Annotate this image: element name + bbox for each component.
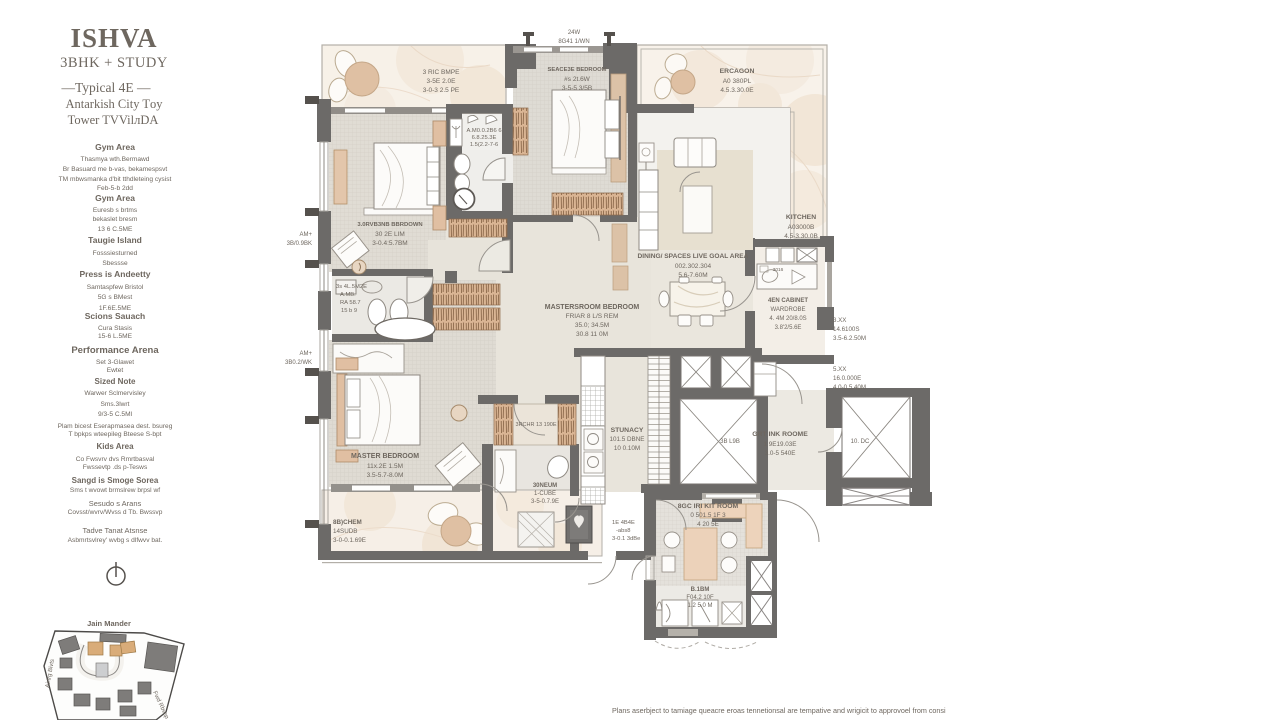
svg-text:3.0RVB3NB BBRDOWN: 3.0RVB3NB BBRDOWN bbox=[357, 222, 422, 228]
svg-text:B.1BM: B.1BM bbox=[691, 587, 710, 593]
svg-text:4.5-3.30.0B: 4.5-3.30.0B bbox=[784, 233, 818, 240]
svg-text:Sesudo s Arans: Sesudo s Arans bbox=[89, 499, 142, 508]
svg-text:Fosssiesturned: Fosssiesturned bbox=[93, 250, 138, 257]
svg-text:F04.2 10F: F04.2 10F bbox=[686, 595, 714, 601]
svg-text:ERCAGON: ERCAGON bbox=[720, 68, 755, 75]
svg-text:RA 58.7: RA 58.7 bbox=[340, 300, 361, 306]
svg-text:4EN CABINET: 4EN CABINET bbox=[768, 298, 808, 304]
svg-text:Tower TVVilлDA: Tower TVVilлDA bbox=[68, 113, 159, 127]
svg-text:4.0-0.5.40M: 4.0-0.5.40M bbox=[833, 384, 866, 391]
svg-text:A03000B: A03000B bbox=[788, 224, 815, 231]
svg-text:16.0.000E: 16.0.000E bbox=[833, 375, 861, 382]
svg-text:3.XX: 3.XX bbox=[833, 317, 846, 324]
svg-text:Sized Note: Sized Note bbox=[95, 377, 136, 386]
svg-text:13 6 C.5ME: 13 6 C.5ME bbox=[98, 226, 133, 233]
svg-text:6.8.25.3E: 6.8.25.3E bbox=[472, 135, 497, 141]
svg-text:3-5-0.7.9E: 3-5-0.7.9E bbox=[531, 499, 559, 505]
svg-text:Set 3-Glawet: Set 3-Glawet bbox=[96, 359, 134, 366]
svg-text:DINING/ SPACES LIVE GOAL AREA: DINING/ SPACES LIVE GOAL AREA bbox=[638, 253, 749, 260]
svg-text:3B0.2/WK: 3B0.2/WK bbox=[285, 360, 312, 366]
svg-text:A.MB.: A.MB. bbox=[340, 292, 356, 298]
svg-text:FRIAR 8 L/S REM: FRIAR 8 L/S REM bbox=[566, 313, 619, 320]
svg-text:A.M0.0.2B6 6: A.M0.0.2B6 6 bbox=[466, 128, 501, 134]
svg-text:3-0.4:5.7BM: 3-0.4:5.7BM bbox=[372, 240, 407, 247]
svg-text:Br Basuard me b-vas, bekamesps: Br Basuard me b-vas, bekamespsvt bbox=[63, 166, 168, 173]
svg-text:3 RIC BMPE: 3 RIC BMPE bbox=[423, 69, 461, 76]
svg-text:3s 4L.5M2E: 3s 4L.5M2E bbox=[336, 284, 367, 290]
svg-text:-abs8: -abs8 bbox=[616, 528, 631, 534]
svg-text:AM+: AM+ bbox=[299, 351, 312, 357]
svg-text:3.5-5.7-8.0M: 3.5-5.7-8.0M bbox=[367, 472, 404, 479]
svg-text:15-6 L.5ME: 15-6 L.5ME bbox=[98, 333, 133, 340]
svg-text:Gym Area: Gym Area bbox=[95, 142, 135, 152]
svg-text:8B)CHEM: 8B)CHEM bbox=[333, 519, 362, 526]
svg-text:14.6100S: 14.6100S bbox=[833, 326, 860, 333]
svg-text:Taugie Island: Taugie Island bbox=[88, 235, 142, 245]
svg-text:Sangd is Smoge Sorea: Sangd is Smoge Sorea bbox=[72, 476, 159, 485]
svg-text:Plam bicest Eserapmasea dest.: Plam bicest Eserapmasea dest. bsureg bbox=[58, 423, 173, 430]
svg-text:5.XX: 5.XX bbox=[833, 366, 846, 373]
svg-text:3.0-5 540E: 3.0-5 540E bbox=[765, 450, 796, 457]
svg-text:Performance Arena: Performance Arena bbox=[71, 345, 159, 356]
svg-text:3BHK + STUDY: 3BHK + STUDY bbox=[60, 55, 168, 71]
svg-text:1.2 5.0 M: 1.2 5.0 M bbox=[687, 603, 712, 609]
svg-text:ISHVA: ISHVA bbox=[70, 23, 157, 53]
svg-text:Fwssevtp .ds p-Tesws: Fwssevtp .ds p-Tesws bbox=[83, 464, 148, 471]
svg-text:A0 380PL: A0 380PL bbox=[723, 78, 752, 85]
svg-text:24W: 24W bbox=[568, 30, 581, 36]
svg-text:Jain Mander: Jain Mander bbox=[87, 619, 131, 628]
svg-text:5.6-7.60M: 5.6-7.60M bbox=[678, 272, 707, 279]
svg-text:bekaslet bresm: bekaslet bresm bbox=[93, 216, 138, 223]
svg-text:1-CUBE: 1-CUBE bbox=[534, 491, 556, 497]
svg-text:10 0.10M: 10 0.10M bbox=[614, 445, 640, 452]
svg-text:3-0.1 3dBe: 3-0.1 3dBe bbox=[612, 536, 640, 542]
svg-text:1E 4B4E: 1E 4B4E bbox=[612, 520, 635, 526]
svg-text:1F.6E.5ME: 1F.6E.5ME bbox=[99, 305, 132, 312]
svg-text:3.5-6.2.50M: 3.5-6.2.50M bbox=[833, 335, 866, 342]
svg-text:Cura Stasis: Cura Stasis bbox=[98, 325, 133, 332]
svg-text:Sms.3lwrt: Sms.3lwrt bbox=[101, 401, 130, 408]
svg-text:101.5 DBNE: 101.5 DBNE bbox=[609, 436, 644, 443]
svg-text:5G s BMest: 5G s BMest bbox=[98, 294, 133, 301]
svg-text:Ewtet: Ewtet bbox=[107, 367, 124, 374]
svg-text:AM+: AM+ bbox=[299, 232, 312, 238]
svg-text:4.5.3.30.0E: 4.5.3.30.0E bbox=[720, 87, 754, 94]
svg-text:Gym Area: Gym Area bbox=[95, 193, 135, 203]
svg-text:MASTER BEDROOM: MASTER BEDROOM bbox=[351, 453, 419, 460]
svg-text:Feb-5-b 2dd: Feb-5-b 2dd bbox=[97, 185, 133, 192]
svg-text:3-5-5 3/5B: 3-5-5 3/5B bbox=[562, 85, 592, 92]
svg-text:Scions Sauach: Scions Sauach bbox=[85, 311, 145, 321]
svg-text:3-0-3 2.5 PE: 3-0-3 2.5 PE bbox=[423, 87, 460, 94]
svg-text:30.8 11 0M: 30.8 11 0M bbox=[576, 331, 608, 338]
svg-text:30NEUM: 30NEUM bbox=[533, 483, 557, 489]
svg-text:Sbessse: Sbessse bbox=[102, 260, 128, 267]
svg-text:14SUDB: 14SUDB bbox=[333, 528, 358, 535]
svg-text:1.5(2.2-7-6: 1.5(2.2-7-6 bbox=[470, 142, 498, 148]
svg-text:TM mbwsmanka d'bit tthdleteing: TM mbwsmanka d'bit tthdleteing cysist bbox=[59, 176, 172, 183]
svg-text:3-0-0.1.69E: 3-0-0.1.69E bbox=[333, 537, 366, 544]
svg-text:8G41 1/WN: 8G41 1/WN bbox=[558, 39, 589, 45]
svg-text:9/3-5 C.5Ml: 9/3-5 C.5Ml bbox=[98, 411, 133, 418]
svg-text:0 501.5 1F 3: 0 501.5 1F 3 bbox=[690, 512, 726, 519]
svg-text:11x.2E 1.5M: 11x.2E 1.5M bbox=[367, 463, 403, 470]
svg-text:Antarkish City Tоy: Antarkish City Tоy bbox=[66, 97, 164, 111]
svg-text:Euresb s brtms: Euresb s brtms bbox=[93, 207, 138, 214]
svg-text:—Typical 4E —: —Typical 4E — bbox=[60, 80, 151, 95]
svg-text:002.302.304: 002.302.304 bbox=[675, 263, 712, 270]
svg-text:4 20 5E: 4 20 5E bbox=[697, 521, 719, 528]
svg-text:8GC IRI KIT ROOM: 8GC IRI KIT ROOM bbox=[678, 503, 739, 510]
svg-text:4. 4M 20/8.0S: 4. 4M 20/8.0S bbox=[769, 316, 806, 322]
svg-text:3RCHR 13 190E: 3RCHR 13 190E bbox=[516, 422, 557, 428]
svg-text:Plans aserbject to tamiage que: Plans aserbject to tamiage queacre eroas… bbox=[612, 706, 946, 715]
svg-text:WARDROBE: WARDROBE bbox=[770, 307, 805, 313]
svg-text:Warwer Sclmervisley: Warwer Sclmervisley bbox=[84, 390, 146, 397]
svg-text:3.8'2/5.6E: 3.8'2/5.6E bbox=[775, 325, 802, 331]
svg-text:KITCHEN: KITCHEN bbox=[786, 214, 816, 221]
svg-text:Asbmrtsvlrey' wvbg s dlfwvv ba: Asbmrtsvlrey' wvbg s dlfwvv bat. bbox=[68, 537, 163, 544]
svg-text:3B L9B: 3B L9B bbox=[720, 439, 740, 445]
svg-text:3016: 3016 bbox=[773, 267, 784, 273]
svg-text:1 9E19.03E: 1 9E19.03E bbox=[764, 441, 797, 448]
svg-text:Kids Area: Kids Area bbox=[96, 442, 134, 451]
svg-text:SEACE3E BEDROOM: SEACE3E BEDROOM bbox=[548, 67, 607, 73]
svg-text:35.0; 34.5M: 35.0; 34.5M bbox=[575, 322, 609, 329]
svg-text:30 2E LIM: 30 2E LIM bbox=[375, 231, 405, 238]
svg-text:Tadve Tanat Atsnse: Tadve Tanat Atsnse bbox=[83, 526, 148, 535]
svg-text:3B/0.9BK: 3B/0.9BK bbox=[287, 241, 312, 247]
svg-text:Co Fwsvrv dvs Rmrtbasval: Co Fwsvrv dvs Rmrtbasval bbox=[76, 456, 155, 463]
svg-text:Press is Andeetty: Press is Andeetty bbox=[79, 269, 150, 279]
svg-text:3-5E 2.0E: 3-5E 2.0E bbox=[427, 78, 457, 85]
svg-text:MASTERSROOM BEDROOM: MASTERSROOM BEDROOM bbox=[545, 304, 640, 311]
svg-text:STUNACY: STUNACY bbox=[611, 427, 644, 434]
svg-text:T bpkps wteepileg Bteese S-bpt: T bpkps wteepileg Bteese S-bpt bbox=[69, 431, 162, 438]
svg-text:#s 2t.6W: #s 2t.6W bbox=[564, 76, 591, 83]
svg-text:Sms t wvowt brmslrew brpsl wf: Sms t wvowt brmslrew brpsl wf bbox=[70, 487, 160, 494]
svg-text:GRT INK ROOME: GRT INK ROOME bbox=[752, 431, 808, 438]
svg-text:Covsst/wvrv/Wvss d Tb. Bwssvp: Covsst/wvrv/Wvss d Tb. Bwssvp bbox=[68, 509, 163, 516]
svg-text:15 b 9: 15 b 9 bbox=[341, 308, 357, 314]
svg-text:Samtaspfew Bristol: Samtaspfew Bristol bbox=[87, 284, 144, 291]
svg-text:10. DC: 10. DC bbox=[851, 439, 870, 445]
svg-text:Thasmya wth.Bermawd: Thasmya wth.Bermawd bbox=[81, 156, 150, 163]
